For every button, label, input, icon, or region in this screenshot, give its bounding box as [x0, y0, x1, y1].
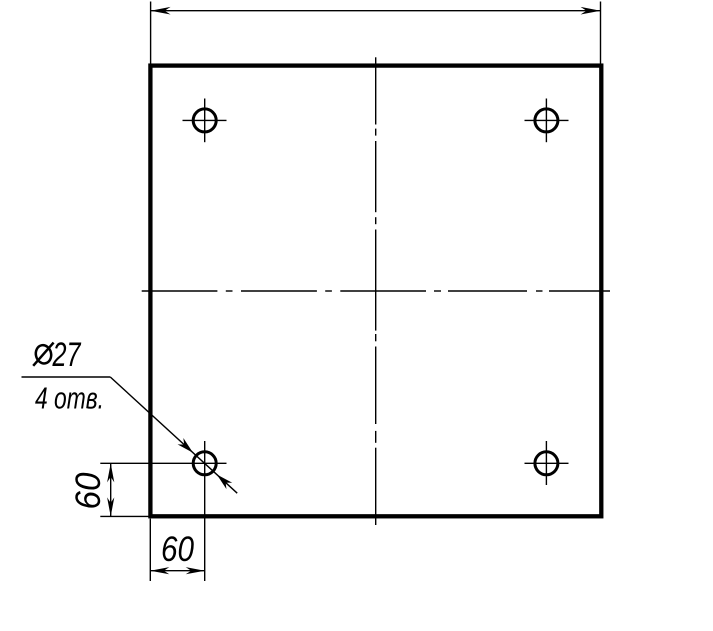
svg-text:4 отв.: 4 отв.	[35, 381, 104, 416]
svg-text:27: 27	[52, 336, 82, 374]
svg-text:60: 60	[161, 530, 194, 569]
svg-text:60: 60	[69, 472, 108, 510]
